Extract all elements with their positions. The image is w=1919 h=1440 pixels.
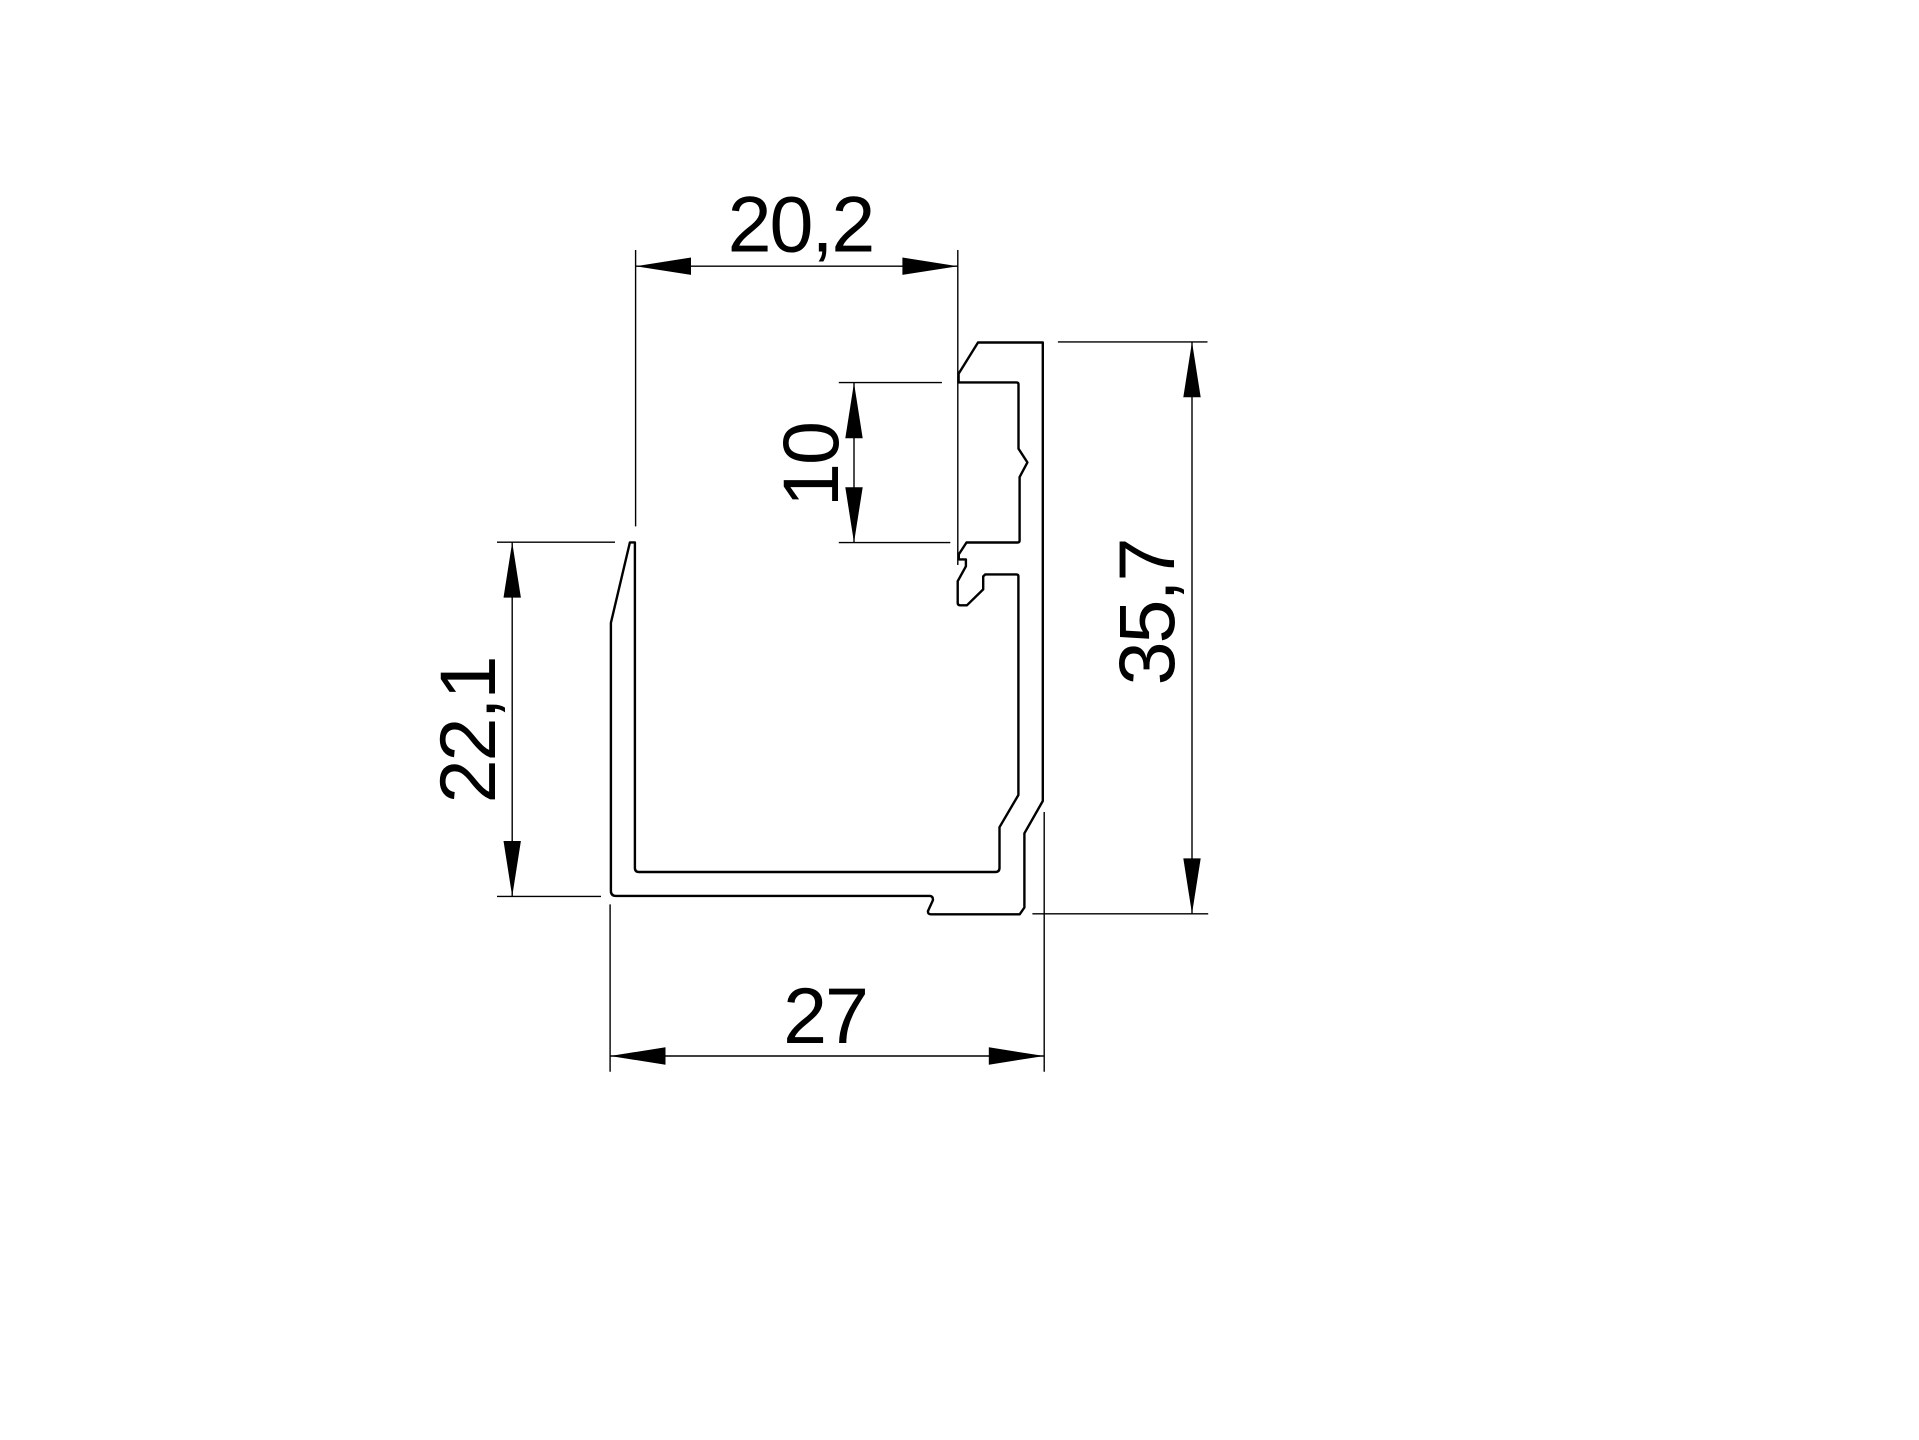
svg-text:35,7: 35,7 bbox=[1102, 540, 1191, 686]
svg-text:10: 10 bbox=[766, 423, 855, 507]
svg-text:22,1: 22,1 bbox=[423, 658, 512, 804]
svg-text:20,2: 20,2 bbox=[728, 180, 874, 269]
svg-text:27: 27 bbox=[783, 971, 867, 1060]
